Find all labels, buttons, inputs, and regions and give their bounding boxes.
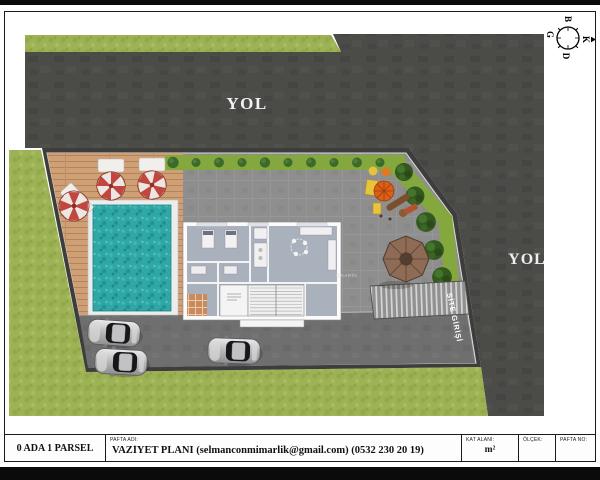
kat-alani-value: m² — [462, 445, 518, 455]
bottom-black-bar — [0, 467, 600, 480]
drawing-title: VAZİYET PLANI (selmanconmimarlik@gmail.c… — [106, 445, 461, 456]
title-block-parcel-cell: 0 ADA 1 PARSEL — [5, 435, 105, 461]
title-block-pafta-no-cell: PAFTA NO: — [555, 435, 595, 461]
pafta-adi-label: PAFTA ADI: — [110, 437, 138, 443]
pafta-no-label: PAFTA NO: — [560, 437, 587, 443]
kat-alani-label: KAT ALANI: — [466, 437, 494, 443]
olcek-label: ÖLÇEK: — [523, 437, 543, 443]
title-block: 0 ADA 1 PARSEL PAFTA ADI: VAZİYET PLANI … — [4, 434, 596, 462]
parcel-number: 0 ADA 1 PARSEL — [5, 443, 105, 454]
title-block-olcek-cell: ÖLÇEK: — [518, 435, 555, 461]
site-plan-sheet: YOL YOL SİTE GİRİŞİ Ç.KARTA B G D K 0 AD… — [0, 0, 600, 480]
sheet-border-frame — [4, 11, 596, 462]
title-block-pafta-adi-cell: PAFTA ADI: VAZİYET PLANI (selmanconmimar… — [105, 435, 461, 461]
title-block-kat-alani-cell: KAT ALANI: m² — [461, 435, 518, 461]
